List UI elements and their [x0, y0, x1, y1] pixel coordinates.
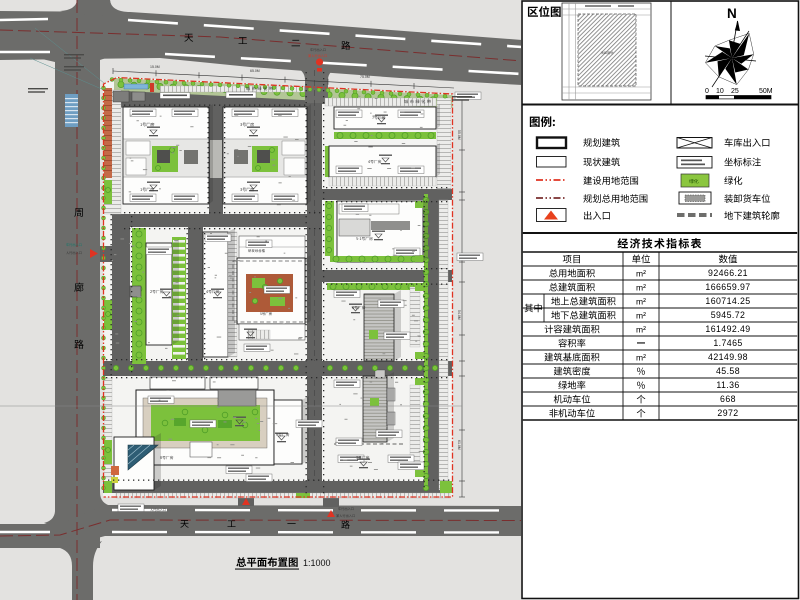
svg-text:42149.98: 42149.98: [708, 352, 748, 362]
svg-text:5945.72: 5945.72: [711, 310, 746, 320]
svg-text:0: 0: [705, 88, 709, 95]
svg-text:92466.21: 92466.21: [708, 268, 748, 278]
svg-text:N: N: [727, 6, 737, 21]
svg-text:160714.25: 160714.25: [705, 296, 750, 306]
svg-text:54.0M: 54.0M: [457, 310, 461, 320]
svg-text:161492.49: 161492.49: [705, 324, 750, 334]
svg-text:61.0M: 61.0M: [457, 440, 461, 450]
svg-text:m²: m²: [636, 353, 646, 363]
svg-text:25: 25: [731, 88, 739, 95]
svg-text:10: 10: [716, 88, 724, 95]
svg-text:m²: m²: [636, 311, 646, 321]
svg-text:m²: m²: [636, 325, 646, 335]
svg-text:15.0M: 15.0M: [150, 65, 160, 69]
svg-text:166659.97: 166659.97: [705, 282, 750, 292]
svg-text:75.0M: 75.0M: [360, 75, 370, 79]
svg-text:45.58: 45.58: [716, 366, 740, 376]
svg-text:m²: m²: [636, 283, 646, 293]
svg-text:50M: 50M: [759, 88, 773, 95]
svg-text:1:1000: 1:1000: [303, 558, 331, 568]
svg-text:m²: m²: [636, 297, 646, 307]
svg-text:11.36: 11.36: [716, 380, 739, 390]
svg-text:1.7465: 1.7465: [713, 338, 742, 348]
svg-text:m²: m²: [636, 269, 646, 279]
svg-text:55.0M: 55.0M: [457, 130, 461, 140]
svg-text:668: 668: [720, 394, 736, 404]
svg-text:2972: 2972: [717, 408, 738, 418]
svg-text:65.0M: 65.0M: [250, 69, 260, 73]
